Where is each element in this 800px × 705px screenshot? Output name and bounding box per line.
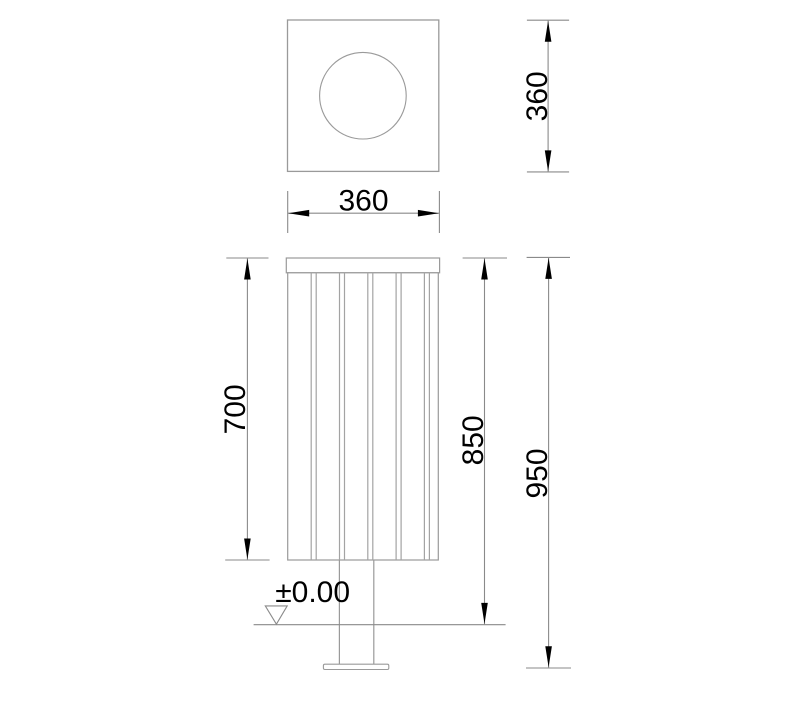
svg-text:360: 360 bbox=[338, 184, 388, 217]
svg-text:850: 850 bbox=[457, 415, 490, 465]
svg-text:950: 950 bbox=[521, 448, 554, 498]
svg-text:360: 360 bbox=[521, 71, 554, 121]
svg-text:700: 700 bbox=[219, 384, 252, 434]
svg-text:±0.00: ±0.00 bbox=[275, 576, 350, 609]
